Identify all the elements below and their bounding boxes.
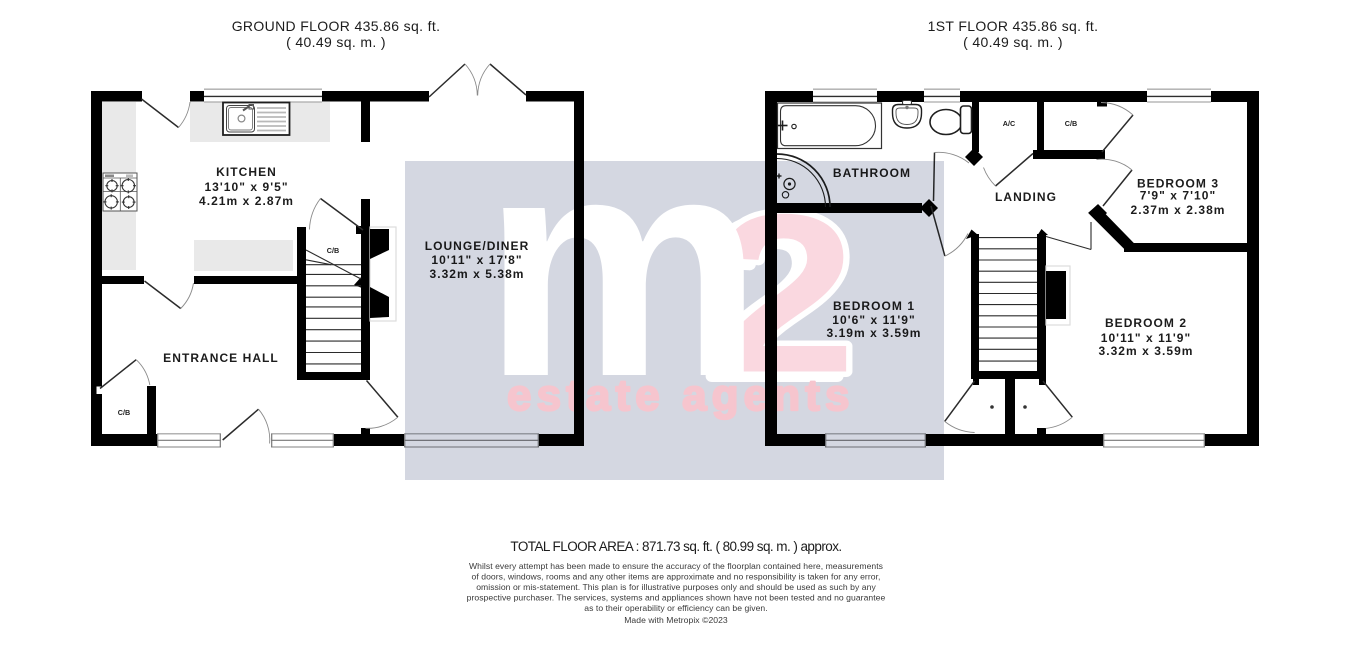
svg-text:C/B: C/B — [327, 246, 339, 255]
svg-text:GROUND FLOOR 435.86 sq. ft.: GROUND FLOOR 435.86 sq. ft. — [232, 18, 441, 34]
svg-text:ENTRANCE HALL: ENTRANCE HALL — [163, 351, 279, 365]
svg-text:1ST FLOOR 435.86 sq. ft.: 1ST FLOOR 435.86 sq. ft. — [928, 18, 1099, 34]
svg-text:2.37m x 2.38m: 2.37m x 2.38m — [1130, 203, 1225, 217]
svg-text:as to their operability or eff: as to their operability or efficiency ca… — [584, 603, 767, 613]
svg-text:TOTAL FLOOR AREA : 871.73 sq.: TOTAL FLOOR AREA : 871.73 sq. ft. ( 80.9… — [510, 539, 841, 554]
svg-text:BEDROOM 2: BEDROOM 2 — [1105, 316, 1187, 330]
svg-text:KITCHEN: KITCHEN — [216, 165, 277, 179]
svg-text:C/B: C/B — [1065, 119, 1077, 128]
svg-text:C/B: C/B — [118, 408, 130, 417]
svg-text:13'10" x 9'5": 13'10" x 9'5" — [204, 180, 288, 194]
svg-text:( 40.49 sq. m. ): ( 40.49 sq. m. ) — [963, 34, 1063, 50]
svg-text:estate agents: estate agents — [507, 371, 855, 420]
svg-text:( 40.49 sq. m. ): ( 40.49 sq. m. ) — [286, 34, 386, 50]
svg-text:4.21m x 2.87m: 4.21m x 2.87m — [199, 194, 294, 208]
svg-text:A/C: A/C — [1003, 119, 1015, 128]
svg-text:prospective purchaser. The ser: prospective purchaser. The services, sys… — [467, 593, 886, 603]
svg-text:3.32m x 3.59m: 3.32m x 3.59m — [1098, 344, 1193, 358]
svg-text:LANDING: LANDING — [995, 190, 1057, 204]
svg-text:Made with Metropix ©2023: Made with Metropix ©2023 — [624, 615, 728, 625]
svg-text:of doors, windows, rooms and a: of doors, windows, rooms and any other i… — [472, 572, 881, 582]
svg-text:7'9" x 7'10": 7'9" x 7'10" — [1140, 189, 1216, 203]
svg-text:10'11" x 11'9": 10'11" x 11'9" — [1101, 331, 1192, 345]
svg-text:omission or mis-statement. Thi: omission or mis-statement. This plan is … — [476, 582, 876, 592]
svg-text:Whilst every attempt has been: Whilst every attempt has been made to en… — [469, 561, 883, 571]
